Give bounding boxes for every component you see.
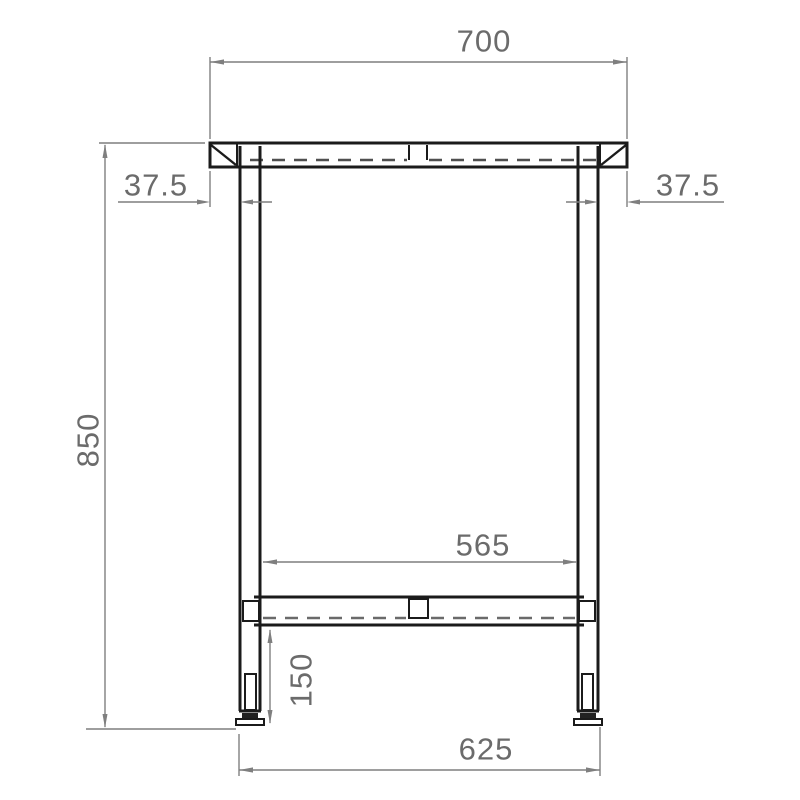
dimension-label-outer-leg-span: 625 (459, 734, 514, 765)
dimension-label-inner-width: 565 (456, 530, 511, 561)
dimension-label-top-width: 700 (457, 26, 512, 57)
dim-700-lines (210, 57, 627, 139)
dim-850-lines (86, 143, 236, 729)
arrowhead (563, 559, 577, 564)
stretcher-left-bracket (243, 601, 259, 621)
left-foot-plate (236, 719, 264, 725)
technical-drawing-canvas: 700 37.5 37.5 850 565 150 625 (0, 0, 800, 800)
arrowhead (627, 200, 640, 205)
tabletop-right-diagonal-brace (601, 145, 626, 165)
dimension-label-left-overhang: 37.5 (124, 170, 188, 201)
stretcher-right-bracket (579, 601, 595, 621)
arrowhead (613, 59, 627, 64)
left-foot-insert (245, 674, 256, 710)
arrowhead (586, 767, 600, 772)
dimension-label-stretcher-height: 150 (286, 653, 317, 708)
arrowhead (585, 200, 598, 205)
stretcher-center-connector (409, 599, 428, 618)
arrowhead (268, 710, 273, 724)
arrowhead (103, 144, 108, 158)
stretcher (243, 597, 595, 625)
arrowhead (210, 59, 224, 64)
tabletop (210, 143, 627, 167)
tabletop-left-diagonal-brace (211, 145, 236, 165)
arrowhead (197, 200, 210, 205)
arrowhead (240, 200, 253, 205)
right-foot-insert (582, 674, 593, 710)
dim-150-lines (268, 629, 273, 724)
dim-565-lines (263, 559, 577, 564)
tabletop-outline (210, 143, 627, 167)
arrowhead (239, 767, 253, 772)
dim-625-lines (239, 727, 600, 776)
arrowhead (103, 714, 108, 728)
right-foot-plate (574, 719, 602, 725)
dimension-label-overall-height: 850 (73, 413, 104, 468)
arrowhead (263, 559, 277, 564)
arrowhead (268, 629, 273, 643)
dimension-label-right-overhang: 37.5 (656, 170, 720, 201)
drawing-lines (0, 0, 800, 800)
